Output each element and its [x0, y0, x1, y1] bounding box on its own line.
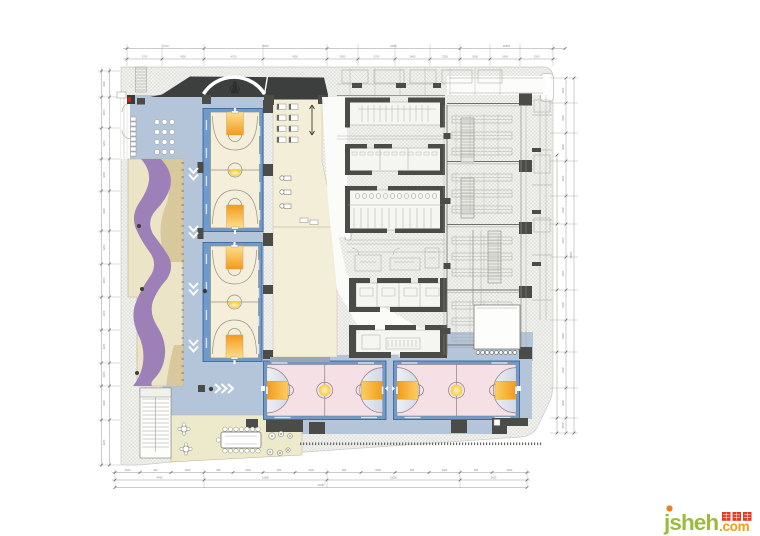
svg-text:3300: 3300 [561, 270, 565, 276]
svg-text:960: 960 [342, 468, 347, 472]
svg-text:4200: 4200 [102, 400, 106, 406]
svg-text:11850: 11850 [503, 44, 511, 48]
svg-text:9400: 9400 [390, 44, 397, 48]
svg-text:4700: 4700 [231, 55, 237, 59]
svg-text:4200: 4200 [102, 343, 106, 349]
svg-text:3050: 3050 [340, 55, 346, 59]
svg-text:3650: 3650 [491, 476, 497, 480]
svg-text:3300: 3300 [561, 115, 565, 121]
svg-text:4200: 4200 [102, 244, 106, 250]
svg-text:3300: 3300 [561, 367, 565, 373]
svg-text:3300: 3300 [561, 175, 565, 181]
svg-text:3300: 3300 [561, 237, 565, 243]
svg-text:960: 960 [153, 468, 158, 472]
svg-text:3400: 3400 [410, 55, 416, 59]
svg-text:960: 960 [277, 468, 282, 472]
svg-text:4200: 4200 [102, 277, 106, 283]
svg-text:960: 960 [216, 468, 221, 472]
svg-text:3300: 3300 [561, 422, 565, 428]
svg-text:4200: 4200 [102, 172, 106, 178]
svg-text:11850: 11850 [262, 476, 270, 480]
svg-text:4400: 4400 [507, 468, 513, 472]
svg-text:jsheh: jsheh [663, 510, 718, 535]
svg-text:4400: 4400 [125, 468, 131, 472]
svg-text:2400: 2400 [502, 55, 508, 59]
svg-text:3300: 3300 [561, 87, 565, 93]
svg-text:36600: 36600 [569, 251, 573, 259]
svg-text:2700: 2700 [374, 55, 380, 59]
svg-text:1700: 1700 [142, 55, 148, 59]
svg-text:4400: 4400 [185, 468, 191, 472]
svg-text:4200: 4200 [102, 81, 106, 87]
svg-text:4200: 4200 [102, 140, 106, 146]
svg-text:11850: 11850 [390, 476, 398, 480]
svg-text:2400: 2400 [472, 55, 478, 59]
svg-text:8440: 8440 [157, 476, 163, 480]
svg-text:4200: 4200 [102, 310, 106, 316]
svg-text:31650: 31650 [317, 483, 325, 487]
svg-text:3300: 3300 [534, 55, 540, 59]
svg-text:4200: 4200 [102, 439, 106, 445]
svg-text:4200: 4200 [102, 371, 106, 377]
svg-text:.com: .com [719, 519, 750, 534]
svg-text:3300: 3300 [561, 333, 565, 339]
svg-text:4400: 4400 [442, 468, 448, 472]
svg-text:3300: 3300 [561, 207, 565, 213]
svg-text:3300: 3300 [561, 302, 565, 308]
svg-text:3300: 3300 [561, 144, 565, 150]
svg-text:2350: 2350 [442, 55, 448, 59]
svg-text:4400: 4400 [308, 468, 314, 472]
svg-text:4200: 4200 [102, 109, 106, 115]
svg-text:4400: 4400 [245, 468, 251, 472]
svg-text:960: 960 [474, 468, 479, 472]
svg-text:4350: 4350 [292, 55, 298, 59]
svg-text:4200: 4200 [102, 208, 106, 214]
svg-text:4350: 4350 [180, 55, 186, 59]
svg-text:4400: 4400 [375, 468, 381, 472]
svg-text:960: 960 [410, 468, 415, 472]
svg-text:1700: 1700 [162, 44, 169, 48]
svg-text:8400: 8400 [262, 44, 269, 48]
svg-text:3300: 3300 [561, 400, 565, 406]
